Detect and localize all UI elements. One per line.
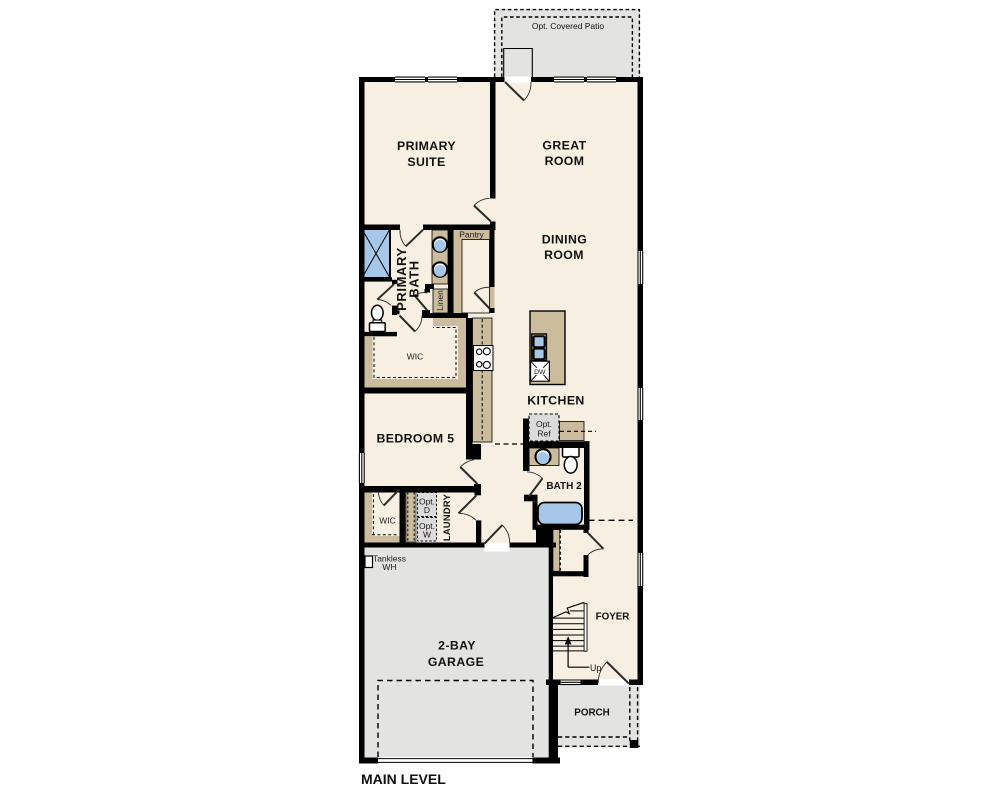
svg-text:D: D (424, 505, 430, 515)
svg-text:DW: DW (534, 369, 546, 376)
svg-text:Ref: Ref (537, 429, 551, 439)
svg-text:MAIN LEVEL: MAIN LEVEL (361, 771, 446, 787)
svg-text:GREAT: GREAT (542, 139, 586, 153)
svg-text:GARAGE: GARAGE (428, 655, 484, 669)
svg-text:WIC: WIC (407, 352, 424, 362)
svg-text:Linen: Linen (435, 290, 445, 311)
svg-text:KITCHEN: KITCHEN (527, 394, 584, 408)
svg-text:PRIMARY: PRIMARY (397, 139, 456, 153)
svg-text:FOYER: FOYER (596, 612, 630, 623)
svg-text:2-BAY: 2-BAY (438, 639, 476, 653)
svg-text:BEDROOM 5: BEDROOM 5 (376, 431, 454, 445)
svg-text:W: W (423, 530, 431, 540)
svg-text:Pantry: Pantry (459, 230, 484, 240)
svg-text:ROOM: ROOM (544, 248, 584, 262)
svg-text:PORCH: PORCH (574, 708, 609, 719)
svg-text:BATH 2: BATH 2 (546, 481, 582, 492)
svg-text:ROOM: ROOM (545, 154, 585, 168)
svg-text:Up: Up (590, 663, 601, 673)
svg-text:DINING: DINING (542, 233, 587, 247)
svg-text:Opt.: Opt. (536, 419, 552, 429)
svg-text:BATH: BATH (407, 260, 422, 298)
svg-text:SUITE: SUITE (407, 155, 445, 169)
svg-text:WIC: WIC (379, 516, 396, 526)
svg-text:Opt. Covered Patio: Opt. Covered Patio (532, 21, 605, 31)
svg-text:WH: WH (382, 562, 396, 572)
svg-text:LAUNDRY: LAUNDRY (442, 493, 452, 541)
